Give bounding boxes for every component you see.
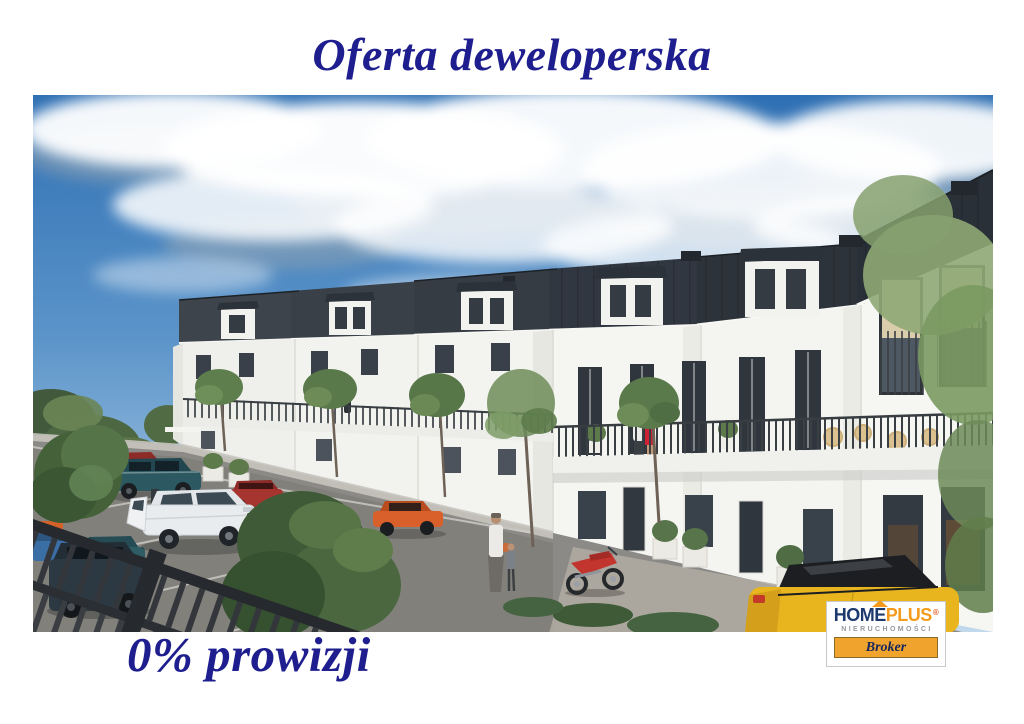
render-scene	[33, 95, 993, 632]
headline-oferta-deweloperska: Oferta deweloperska	[0, 30, 1024, 80]
logo-home-e: E	[874, 605, 886, 625]
registered-trademark-symbol: ®	[933, 608, 938, 617]
property-render-photo	[33, 95, 993, 632]
logo-subtitle: NIERUCHOMOŚCI	[827, 626, 945, 633]
homeplus-wordmark: HOMEPLUS®	[827, 606, 945, 625]
homeplus-logo: HOMEPLUS® NIERUCHOMOŚCI Broker	[826, 601, 946, 667]
promo-0-prowizji: 0% prowizji	[127, 627, 371, 683]
broker-badge-label: Broker	[866, 640, 906, 656]
logo-roof-icon	[872, 600, 888, 607]
logo-plus-text: PLUS	[886, 605, 932, 625]
ad-image: Oferta deweloperska	[0, 0, 1024, 724]
logo-home-text: HOM	[834, 605, 875, 625]
broker-badge: Broker	[834, 637, 938, 658]
